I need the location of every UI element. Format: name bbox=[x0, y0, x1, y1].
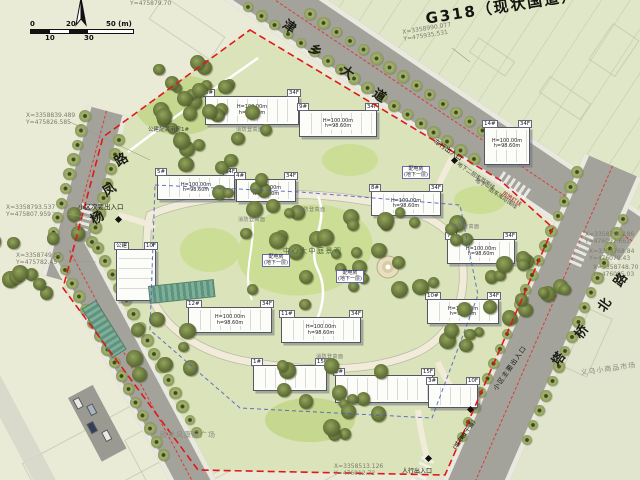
fire-access-label: 消防登高面 bbox=[236, 126, 264, 133]
coordinate-label: X=3358790.186Y=476092.661 bbox=[585, 232, 634, 245]
coordinate-label: X=3358839.489Y=475826.585 bbox=[26, 113, 75, 126]
scale-bar-bottom-ticks: 1030 bbox=[30, 34, 134, 43]
annotation-overlay bbox=[0, 0, 640, 480]
scale-tick: 50 (m) bbox=[106, 20, 132, 28]
scale-bar: 02050 (m) 1030 bbox=[30, 20, 134, 43]
scale-tick: 10 bbox=[45, 34, 55, 42]
power-room-label: 配电房(地下一层) bbox=[402, 166, 430, 179]
power-room-label: 配电房(地下一层) bbox=[336, 270, 364, 283]
public-building-label: 公建配套用房1# bbox=[148, 125, 189, 133]
site-plan-canvas: 6#34FH=100.00mh=98.60m9#34FH=100.00mh=98… bbox=[0, 0, 640, 480]
fire-access-label: 消防登高面 bbox=[452, 223, 480, 230]
south-pedestrian-label: 人行出入口 bbox=[402, 466, 432, 475]
scale-bar-top-ticks: 02050 (m) bbox=[30, 20, 134, 29]
coordinate-label: X=3358513.126Y=476012.72 bbox=[334, 464, 383, 477]
central-lawn-label: 中心大中庭景观 bbox=[283, 246, 343, 256]
southwest-plaza-label: 欧美风康居广场 bbox=[160, 430, 216, 440]
scale-tick: 20 bbox=[66, 20, 76, 28]
scale-tick: 0 bbox=[30, 20, 35, 28]
fire-access-label: 消防登高面 bbox=[298, 206, 326, 213]
west-secondary-label: 小区次要出入口 bbox=[78, 201, 124, 211]
coordinate-label: X=3358793.537Y=475807.959 bbox=[6, 205, 55, 218]
fire-access-label: 消防登高面 bbox=[316, 353, 344, 360]
fire-access-label: 消防登高面 bbox=[238, 216, 266, 223]
coordinate-label: X=3358749.53Y=475782.45 bbox=[16, 253, 61, 266]
scale-tick: 30 bbox=[84, 34, 94, 42]
coordinate-label: X=3358768.84Y=476070.43 bbox=[589, 249, 634, 262]
coordinate-label: Y=475879.70 bbox=[130, 1, 171, 8]
underground-garage-boundary-line bbox=[150, 185, 478, 418]
